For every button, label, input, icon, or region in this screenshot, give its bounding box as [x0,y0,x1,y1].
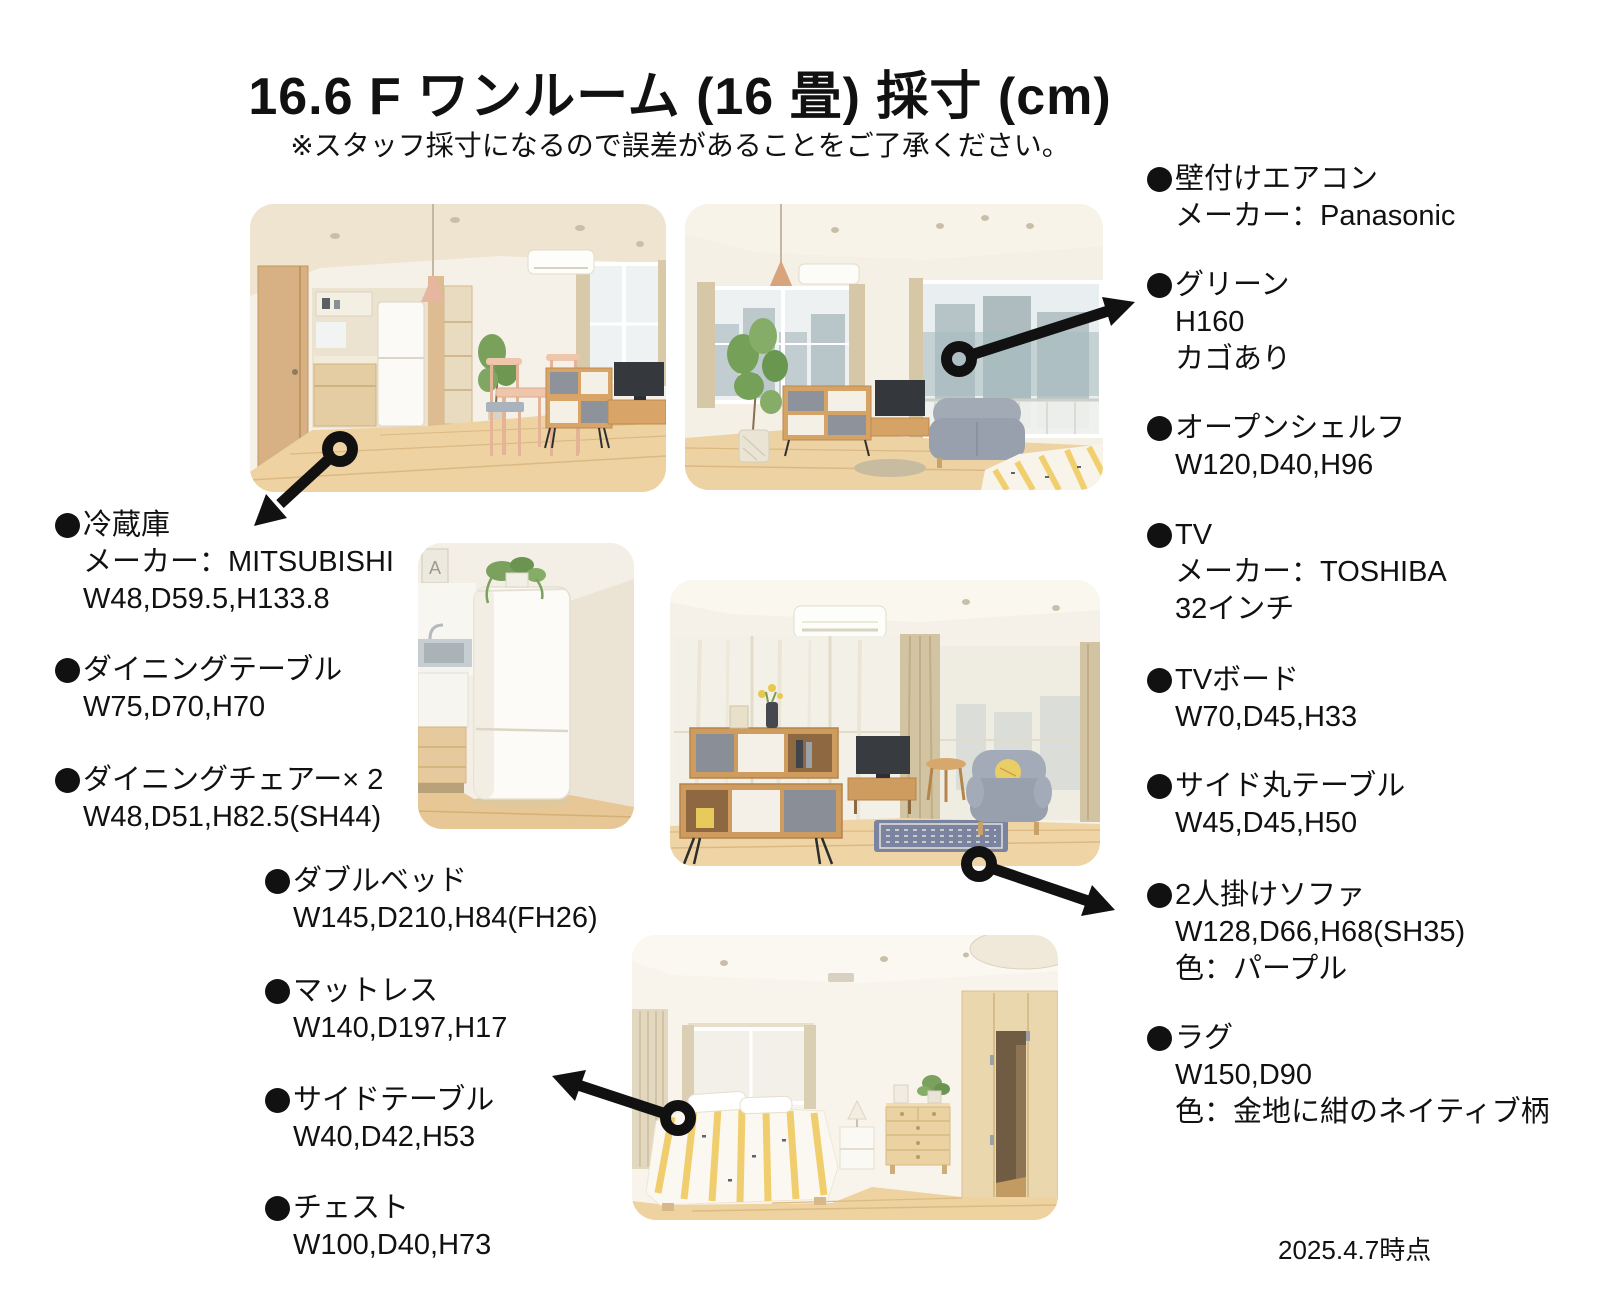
annotation-mattress: マットレス W140,D197,H17 [265,973,507,1047]
annotation-line: メーカー：Panasonic [1147,198,1455,235]
annotation-sofa: 2人掛けソファ W128,D66,H68(SH35) 色：パープル [1147,877,1465,988]
annotation-tv: TV メーカー：TOSHIBA 32インチ [1147,517,1447,628]
bullet-icon [1147,416,1172,441]
annotation-line: W140,D197,H17 [265,1010,507,1047]
photo-living-room-wide [685,204,1103,490]
annotation-item-name: 壁付けエアコン [1175,161,1378,198]
annotation-item-name: 冷蔵庫 [83,507,170,544]
bullet-icon [1147,523,1172,548]
annotation-line: W48,D59.5,H133.8 [55,581,394,618]
bullet-icon [265,1196,290,1221]
rug-illustration [874,820,1008,852]
bullet-icon [1147,167,1172,192]
sofa-illustration [929,398,1025,468]
bullet-icon [265,1088,290,1113]
bullet-icon [1147,1026,1172,1051]
tv-illustration [871,380,929,436]
annotation-line: W75,D70,H70 [55,689,342,726]
air-conditioner-illustration [528,250,594,274]
kitchen-illustration [312,288,428,428]
photo-bedroom [632,935,1058,1220]
annotation-item-name: サイド丸テーブル [1175,768,1405,805]
fridge-illustration [474,587,570,799]
air-conditioner-illustration [799,264,859,284]
closet-illustration [962,991,1058,1203]
annotation-rug: ラグ W150,D90 色：金地に紺のネイティブ柄 [1147,1020,1550,1131]
annotation-line: カゴあり [1147,341,1291,378]
annotation-line: W48,D51,H82.5(SH44) [55,799,383,836]
bullet-icon [1147,774,1172,799]
bullet-icon [1147,883,1172,908]
measurement-sheet: 16.6 F ワンルーム (16 畳) 採寸 (cm) ※スタッフ採寸になるので… [0,0,1600,1312]
annotation-item-name: 2人掛けソファ [1175,877,1365,914]
bullet-icon [55,658,80,683]
page-title: 16.6 F ワンルーム (16 畳) 採寸 (cm) [0,54,1360,129]
annotation-side-round-table: サイド丸テーブル W45,D45,H50 [1147,768,1405,842]
photo-living-room-wide-illustration [685,204,1103,490]
annotation-line: W70,D45,H33 [1147,699,1357,736]
annotation-line: W150,D90 [1147,1057,1550,1094]
annotation-item-name: マットレス [293,973,438,1010]
annotation-line: W100,D40,H73 [265,1227,491,1264]
bullet-icon [265,979,290,1004]
annotation-line: W145,D210,H84(FH26) [265,900,598,937]
annotation-item-name: チェスト [293,1190,409,1227]
annotation-open-shelf: オープンシェルフ W120,D40,H96 [1147,410,1405,484]
annotation-item-name: ラグ [1175,1020,1233,1057]
annotation-wall-aircon: 壁付けエアコン メーカー：Panasonic [1147,161,1455,235]
photo-living-room-window-illustration [670,580,1100,866]
annotation-item-name: ダイニングテーブル [83,652,342,689]
page-subtitle: ※スタッフ採寸になるので誤差があることをご了承ください。 [0,124,1360,164]
annotation-line: メーカー：MITSUBISHI [55,544,394,581]
annotation-item-name: サイドテーブル [293,1082,494,1119]
photo-bedroom-illustration [632,935,1058,1220]
annotation-item-name: オープンシェルフ [1175,410,1405,447]
annotation-dining-chair: ダイニングチェアー× 2 W48,D51,H82.5(SH44) [55,762,383,836]
tv-illustration [608,362,666,424]
annotation-chest: チェスト W100,D40,H73 [265,1190,491,1264]
annotation-item-name: TVボード [1175,662,1299,699]
annotation-line: W45,D45,H50 [1147,805,1405,842]
photo-living-dining-kitchen-illustration [250,204,666,492]
annotation-item-name: グリーン [1175,267,1290,304]
photo-living-dining-kitchen [250,204,666,492]
frame-letter: A [429,558,441,578]
annotation-line: 32インチ [1147,591,1447,628]
annotation-line: W128,D66,H68(SH35) [1147,914,1465,951]
bullet-icon [1147,668,1172,693]
annotation-item-name: ダイニングチェアー× 2 [83,762,383,799]
annotation-tv-board: TVボード W70,D45,H33 [1147,662,1357,736]
bullet-icon [55,768,80,793]
chest-illustration [886,1075,950,1174]
annotation-dining-table: ダイニングテーブル W75,D70,H70 [55,652,342,726]
annotation-line: メーカー：TOSHIBA [1147,554,1447,591]
bullet-icon [1147,273,1172,298]
annotation-line: W40,D42,H53 [265,1119,494,1156]
annotation-green-plant: グリーン H160 カゴあり [1147,267,1291,378]
photo-refrigerator-illustration: A [418,543,634,829]
bullet-icon [55,513,80,538]
air-conditioner-illustration [794,606,886,638]
date-note: 2025.4.7時点 [1278,1230,1431,1267]
annotation-line: W120,D40,H96 [1147,447,1405,484]
annotation-item-name: ダブルベッド [293,863,467,900]
annotation-side-table: サイドテーブル W40,D42,H53 [265,1082,494,1156]
photo-living-room-window [670,580,1100,866]
annotation-double-bed: ダブルベッド W145,D210,H84(FH26) [265,863,598,937]
annotation-refrigerator: 冷蔵庫 メーカー：MITSUBISHI W48,D59.5,H133.8 [55,507,394,618]
photo-refrigerator: A [418,543,634,829]
annotation-line: 色：金地に紺のネイティブ柄 [1147,1094,1550,1131]
wall-frame-illustration: A [422,549,448,583]
annotation-item-name: TV [1175,517,1212,554]
annotation-line: 色：パープル [1147,951,1465,988]
bullet-icon [265,869,290,894]
annotation-line: H160 [1147,304,1291,341]
